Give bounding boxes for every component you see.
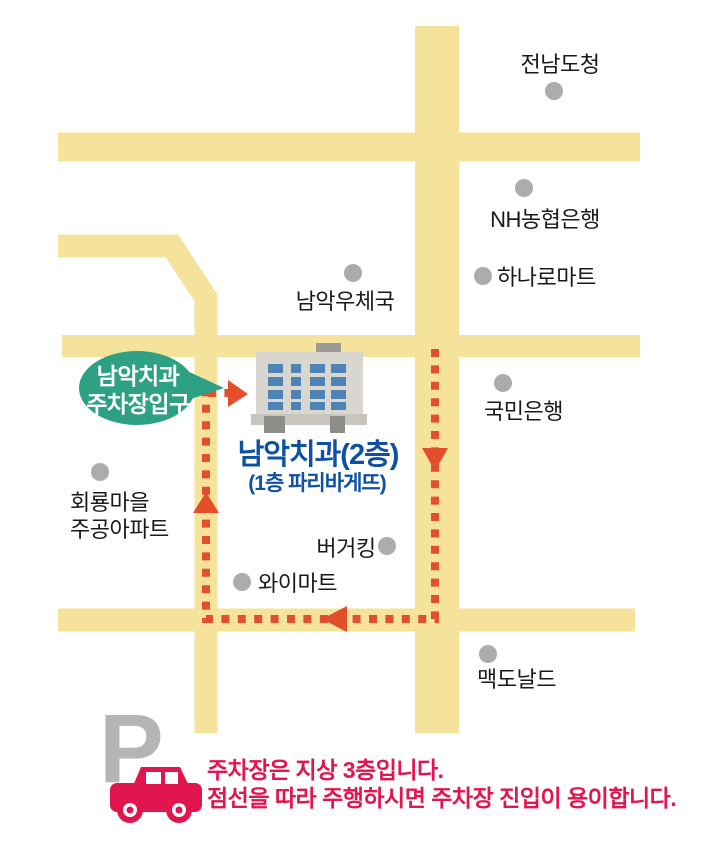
- label-hoeryong-apartment: 회룡마을 주공아파트: [70, 489, 169, 543]
- label-nh-bank: NH농협은행: [490, 202, 600, 234]
- map-graphics: [0, 0, 724, 855]
- label-post-office: 남악우체국: [296, 284, 395, 316]
- building-icon: [251, 343, 367, 433]
- label-kookmin-bank: 국민은행: [484, 394, 563, 426]
- dot-hanaro-mart: [474, 267, 492, 285]
- label-hanaro-mart: 하나로마트: [497, 260, 596, 292]
- dot-mcdonalds: [479, 645, 497, 663]
- label-hoeryong-line2: 주공아파트: [70, 516, 169, 543]
- label-mcdonalds: 맥도날드: [477, 662, 556, 694]
- label-burger-king: 버거킹: [316, 531, 375, 563]
- dot-hoeryong-apartment: [91, 463, 109, 481]
- label-hoeryong-line1: 회룡마을: [70, 489, 169, 516]
- arrow-entrance-right-icon: [228, 380, 248, 407]
- clinic-directions-map: P: [0, 0, 724, 855]
- parking-note-line2: 점선을 따라 주행하시면 주차장 진입이 용이합니다.: [207, 779, 676, 813]
- dot-nh-bank: [515, 179, 533, 197]
- dot-y-mart: [233, 573, 251, 591]
- label-y-mart: 와이마트: [258, 566, 337, 598]
- label-provincial-office: 전남도청: [521, 47, 600, 79]
- dot-burger-king: [378, 537, 396, 555]
- dot-provincial-office: [545, 82, 563, 100]
- clinic-subtitle: (1층 파리바게뜨): [248, 467, 385, 497]
- dot-post-office: [344, 264, 362, 282]
- dot-kookmin-bank: [494, 374, 512, 392]
- car-icon: [110, 767, 202, 823]
- bubble-text-line2: 주차장입구: [86, 385, 189, 419]
